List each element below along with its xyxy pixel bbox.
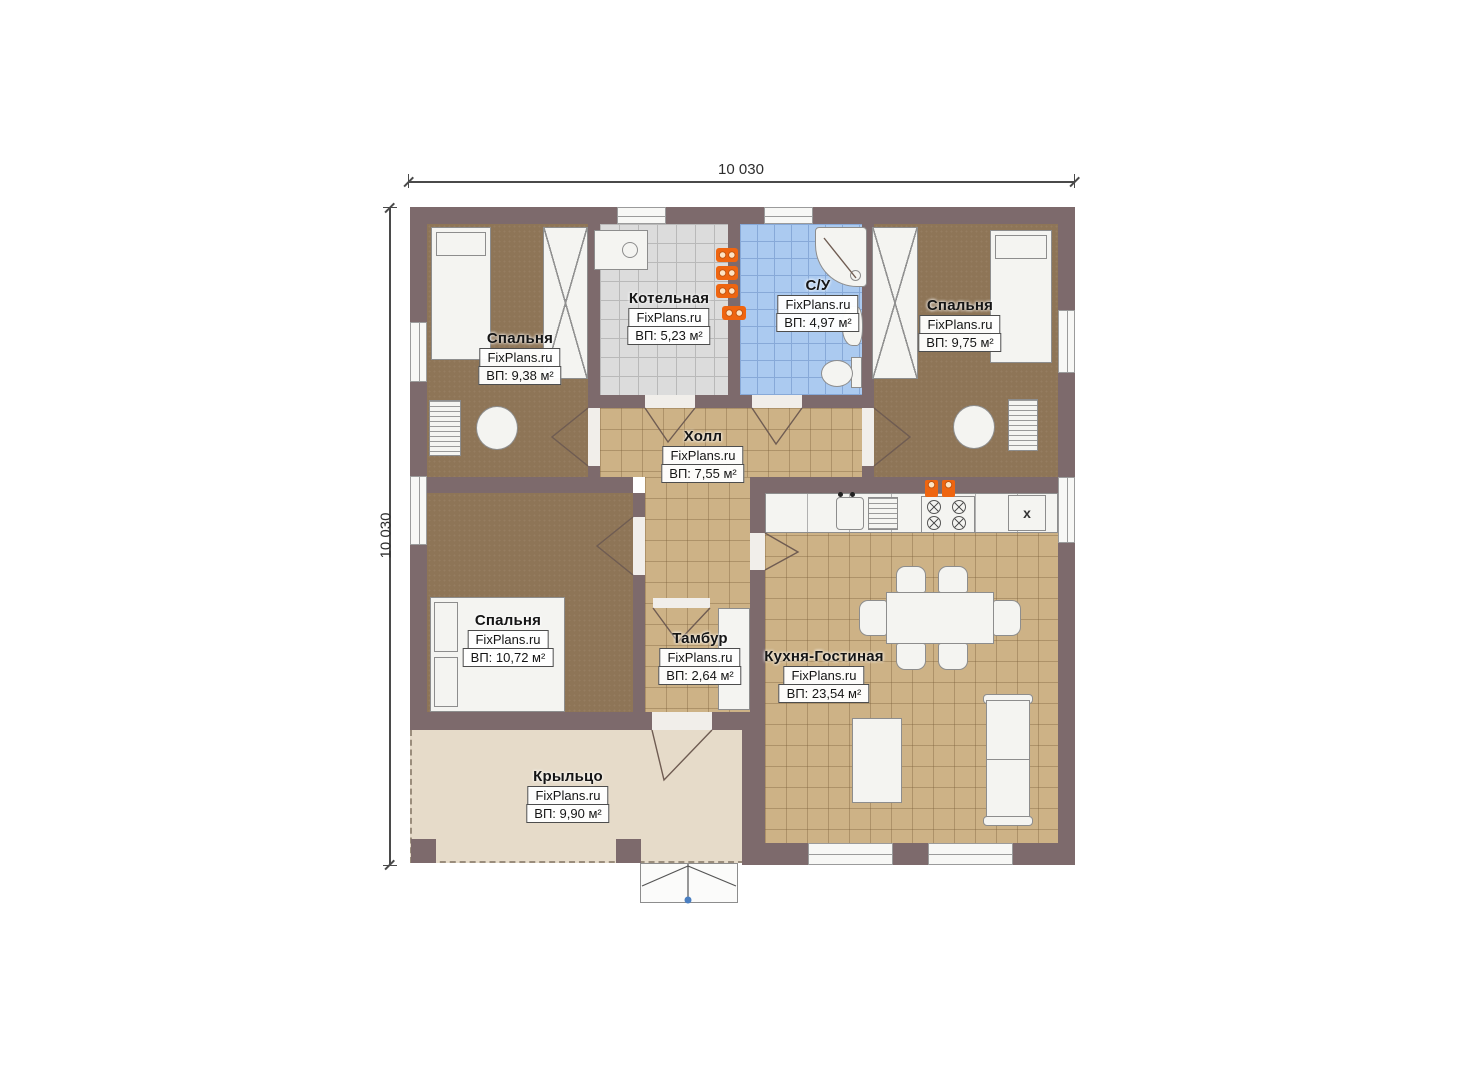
window-right-upper [1058, 310, 1075, 373]
room-name: Спальня [463, 612, 554, 629]
room-brand: FixPlans.ru [662, 446, 743, 465]
room-label-boiler-room: Котельная FixPlans.ru ВП: 5,23 м² [627, 290, 710, 345]
window-right-lower [1058, 477, 1075, 543]
boiler-unit [622, 242, 638, 258]
kitchen-sink [836, 497, 864, 530]
room-area: ВП: 4,97 м² [776, 313, 859, 332]
room-brand: FixPlans.ru [659, 648, 740, 667]
room-brand: FixPlans.ru [777, 295, 858, 314]
dining-chair [938, 566, 968, 593]
window-top-boiler [617, 207, 666, 224]
room-area: ВП: 7,55 м² [661, 464, 744, 483]
bed-pillow [434, 602, 458, 652]
window-kitchen-bottom-1 [808, 843, 893, 865]
bed-pillow [434, 657, 458, 707]
dining-chair [896, 566, 926, 593]
stove-burner-icon [952, 516, 966, 530]
room-name: Тамбур [658, 630, 741, 647]
room-name: Котельная [627, 290, 710, 307]
room-name: С/У [776, 277, 859, 294]
sofa-armrest [983, 816, 1033, 826]
room-brand: FixPlans.ru [628, 308, 709, 327]
room-label-hall: Холл FixPlans.ru ВП: 7,55 м² [661, 428, 744, 483]
wall-mid-horizontal-right [750, 477, 1058, 493]
dining-chair [859, 600, 887, 636]
stove-burner-icon [927, 516, 941, 530]
wall-top [410, 207, 1075, 224]
room-brand: FixPlans.ru [527, 786, 608, 805]
stove-burner-icon [927, 500, 941, 514]
room-label-bathroom: С/У FixPlans.ru ВП: 4,97 м² [776, 277, 859, 332]
room-brand: FixPlans.ru [467, 630, 548, 649]
boiler-counter [594, 230, 648, 270]
room-label-porch: Крыльцо FixPlans.ru ВП: 9,90 м² [526, 768, 609, 823]
stove-burner-icon [952, 500, 966, 514]
room-area: ВП: 23,54 м² [779, 684, 870, 703]
door-opening-porch [652, 712, 712, 730]
kitchen-wall-unit-icon [942, 480, 955, 497]
wall-below-boiler-bath [600, 395, 862, 408]
door-opening-bathroom [752, 395, 802, 408]
door-opening-vestibule [653, 598, 710, 608]
chair [476, 406, 518, 450]
wall-left [410, 207, 427, 730]
wall-corridor-right [750, 493, 765, 712]
room-area: ВП: 9,38 м² [478, 366, 561, 385]
room-label-bedroom-top-left: Спальня FixPlans.ru ВП: 9,38 м² [478, 330, 561, 385]
bed-pillow [436, 232, 486, 256]
room-name: Спальня [478, 330, 561, 347]
wall-kitchen-left-lower [742, 712, 765, 865]
dimension-label-top: 10 030 [701, 161, 781, 178]
porch-pillar [411, 839, 436, 863]
radiator-icon [716, 266, 738, 280]
room-name: Холл [661, 428, 744, 445]
dining-chair [938, 643, 968, 670]
faucet-dot [838, 492, 843, 497]
door-opening-bedroom-bl [633, 517, 645, 575]
room-area: ВП: 2,64 м² [658, 666, 741, 685]
window-kitchen-bottom-2 [928, 843, 1013, 865]
porch-pillar [616, 839, 641, 863]
room-name: Кухня-Гостиная [764, 648, 883, 665]
room-brand: FixPlans.ru [783, 666, 864, 685]
room-name: Крыльцо [526, 768, 609, 785]
room-label-kitchen-living: Кухня-Гостиная FixPlans.ru ВП: 23,54 м² [764, 648, 883, 703]
room-brand: FixPlans.ru [479, 348, 560, 367]
dimension-line-top [408, 181, 1075, 183]
window-left-lower [410, 476, 427, 545]
room-name: Спальня [918, 297, 1001, 314]
room-brand: FixPlans.ru [919, 315, 1000, 334]
room-area: ВП: 5,23 м² [627, 326, 710, 345]
room-area: ВП: 9,90 м² [526, 804, 609, 823]
room-area: ВП: 9,75 м² [918, 333, 1001, 352]
door-opening-boiler [645, 395, 695, 408]
room-label-bedroom-bottom-left: Спальня FixPlans.ru ВП: 10,72 м² [463, 612, 554, 667]
room-label-bedroom-top-right: Спальня FixPlans.ru ВП: 9,75 м² [918, 297, 1001, 352]
room-label-vestibule: Тамбур FixPlans.ru ВП: 2,64 м² [658, 630, 741, 685]
room-area: ВП: 10,72 м² [463, 648, 554, 667]
window-left-upper [410, 322, 427, 382]
radiator-icon [716, 284, 738, 298]
bed-pillow [995, 235, 1047, 259]
fridge-marker: x [1008, 495, 1046, 531]
sofa [986, 700, 1030, 818]
kitchen-wall-unit-icon [925, 480, 938, 497]
door-opening-bedroom-tl [588, 408, 600, 466]
radiator-icon [716, 248, 738, 262]
door-opening-kitchen [750, 533, 765, 570]
chair [953, 405, 995, 449]
coffee-table [852, 718, 902, 803]
toilet-bowl [821, 360, 853, 387]
wall-kitchen-bottom [742, 843, 1075, 865]
dresser [429, 400, 461, 456]
faucet-dot [850, 492, 855, 497]
entrance-steps [640, 863, 738, 903]
wall-mid-horizontal-left [427, 477, 633, 493]
dining-chair [896, 643, 926, 670]
floor-plan: 10 030 10 030 [0, 0, 1474, 1080]
window-top-bathroom [764, 207, 813, 224]
wardrobe [872, 227, 918, 379]
dresser [1008, 399, 1038, 451]
radiator-icon [722, 306, 746, 320]
stove [921, 496, 975, 533]
dimension-label-left: 10 030 [378, 496, 395, 576]
dish-drainer [868, 497, 898, 530]
dining-table [886, 592, 994, 644]
door-opening-bedroom-tr [862, 408, 874, 466]
dining-chair [993, 600, 1021, 636]
